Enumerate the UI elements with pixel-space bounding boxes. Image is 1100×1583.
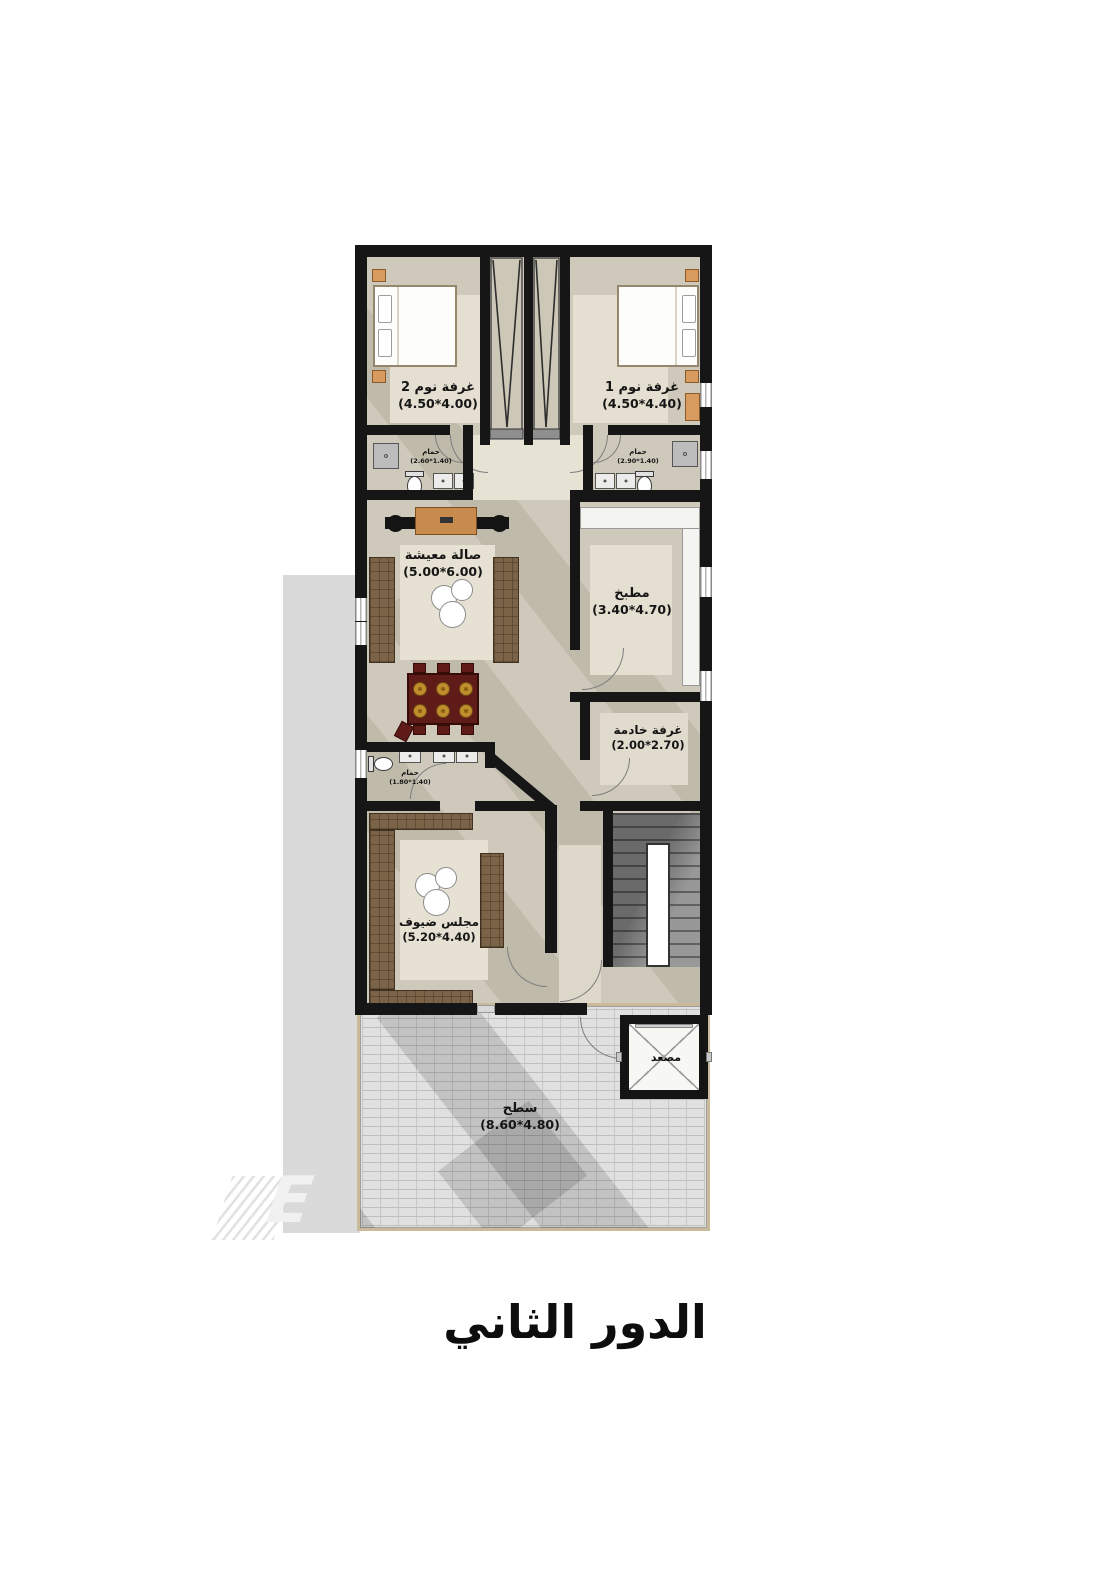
room-dims: (4.50*4.40) (590, 396, 694, 412)
room-dims: (3.40*4.70) (577, 602, 687, 618)
room-name: حمام (401, 448, 461, 457)
elevator-rail (616, 1052, 622, 1062)
plate (459, 682, 473, 696)
window (700, 567, 712, 597)
wall (355, 1003, 477, 1015)
sink-vanity (616, 473, 636, 489)
wall (608, 425, 700, 435)
watermark-logo: E (222, 1172, 352, 1244)
room-name: غرفة خادمة (593, 723, 703, 738)
wall (355, 742, 495, 752)
dining-chair (413, 663, 426, 673)
room-label-majlis: مجلس ضيوف (5.20*4.40) (384, 915, 494, 944)
sink-vanity (595, 473, 615, 489)
plate (436, 682, 450, 696)
wall (355, 245, 712, 257)
wall (583, 425, 593, 500)
wall (580, 692, 590, 760)
kitchen-counter (580, 507, 700, 529)
page: { "title": { "text": "الدور الثاني" }, "… (0, 0, 1100, 1583)
pillow (378, 295, 392, 323)
room-name: حمام (608, 448, 668, 457)
plate-center (441, 687, 445, 691)
wall (524, 257, 533, 445)
room-label-bath2: حمام (2.60*1.40) (401, 448, 461, 465)
drain-icon (384, 454, 388, 458)
plate-center (464, 687, 468, 691)
wall (570, 490, 580, 650)
window (355, 622, 367, 645)
room-label-bath3: حمام (1.80*1.40) (380, 769, 440, 786)
sofa (369, 813, 473, 830)
blanket-line (675, 287, 677, 365)
speaker-icon (491, 515, 508, 532)
sofa (369, 830, 395, 990)
room-dims: (5.00*6.00) (388, 564, 498, 580)
wall (355, 801, 440, 811)
wall (580, 801, 700, 811)
window (700, 383, 712, 407)
room-label-bedroom1: غرفة نوم 1 (4.50*4.40) (590, 380, 694, 412)
room-name: سطح (465, 1101, 575, 1117)
window (700, 451, 712, 479)
bed (373, 285, 457, 367)
plate (436, 704, 450, 718)
elevator-door (635, 1024, 693, 1028)
wall (367, 425, 450, 435)
drain-icon (683, 452, 687, 456)
tv-screen (440, 517, 453, 523)
room-dims: (8.60*4.80) (465, 1117, 575, 1133)
watermark-band (283, 575, 360, 1233)
staircase (613, 813, 700, 967)
coffee-table (439, 601, 466, 628)
wall (480, 257, 490, 445)
room-label-living: صالة معيشة (5.00*6.00) (388, 548, 498, 580)
elevator-label: مصعد (638, 1051, 694, 1064)
stair-void (646, 843, 670, 967)
room-name: غرفة نوم 1 (590, 380, 694, 396)
wall (570, 490, 700, 502)
sink-vanity (433, 473, 453, 489)
room-name: صالة معيشة (388, 548, 498, 564)
coffee-table (423, 889, 450, 916)
pillow (378, 329, 392, 357)
room-label-roof: سطح (8.60*4.80) (465, 1101, 575, 1133)
window (355, 598, 367, 621)
plan-title: الدور الثاني (25, 1295, 1100, 1349)
wall (545, 805, 557, 953)
dining-chair (413, 725, 426, 735)
room-dims: (2.00*2.70) (593, 738, 703, 752)
wall (463, 425, 473, 500)
coffee-table (451, 579, 473, 601)
pillow (682, 329, 696, 357)
room-dims: (4.50*4.00) (383, 396, 493, 412)
plate-center (418, 709, 422, 713)
room-dims: (2.60*1.40) (401, 457, 461, 465)
faucet-icon (625, 480, 628, 483)
faucet-icon (443, 755, 446, 758)
sliding-door (477, 1005, 495, 1013)
speaker-icon (387, 515, 404, 532)
elevator-rail (706, 1052, 712, 1062)
faucet-icon (466, 755, 469, 758)
nightstand (372, 269, 386, 282)
window (355, 750, 367, 778)
nightstand (685, 269, 699, 282)
shower (672, 441, 698, 467)
room-name: مطبخ (577, 586, 687, 602)
dining-chair (461, 663, 474, 673)
coffee-table (435, 867, 457, 889)
dining-chair (461, 725, 474, 735)
room-label-bedroom2: غرفة نوم 2 (4.50*4.00) (383, 380, 493, 412)
room-name: مجلس ضيوف (384, 915, 494, 930)
faucet-icon (442, 480, 445, 483)
window (700, 671, 712, 701)
plate-center (441, 709, 445, 713)
watermark-letter: E (263, 1164, 317, 1238)
wall (475, 801, 545, 811)
wall (355, 490, 473, 500)
wall (560, 257, 570, 445)
pillow (682, 295, 696, 323)
plate (459, 704, 473, 718)
wall (603, 801, 613, 967)
room-dims: (2.90*1.40) (608, 457, 668, 465)
shower (373, 443, 399, 469)
dining-chair (437, 725, 450, 735)
faucet-icon (604, 480, 607, 483)
room-dims: (5.20*4.40) (384, 930, 494, 944)
plate (413, 704, 427, 718)
room-name: غرفة نوم 2 (383, 380, 493, 396)
plate-center (464, 709, 468, 713)
plate-center (418, 687, 422, 691)
room-label-kitchen: مطبخ (3.40*4.70) (577, 586, 687, 618)
blanket-line (397, 287, 399, 365)
bed (617, 285, 699, 367)
dining-chair (437, 663, 450, 673)
room-dims: (1.80*1.40) (380, 778, 440, 786)
floor-plan: مصعد غرفة نوم 2 (4.50*4.00) غرفة ن (355, 245, 712, 1233)
room-name: حمام (380, 769, 440, 778)
room-label-bath1: حمام (2.90*1.40) (608, 448, 668, 465)
wall (700, 245, 712, 1015)
faucet-icon (409, 755, 412, 758)
room-label-maid: غرفة خادمة (2.00*2.70) (593, 723, 703, 752)
wall (495, 1003, 587, 1015)
plate (413, 682, 427, 696)
